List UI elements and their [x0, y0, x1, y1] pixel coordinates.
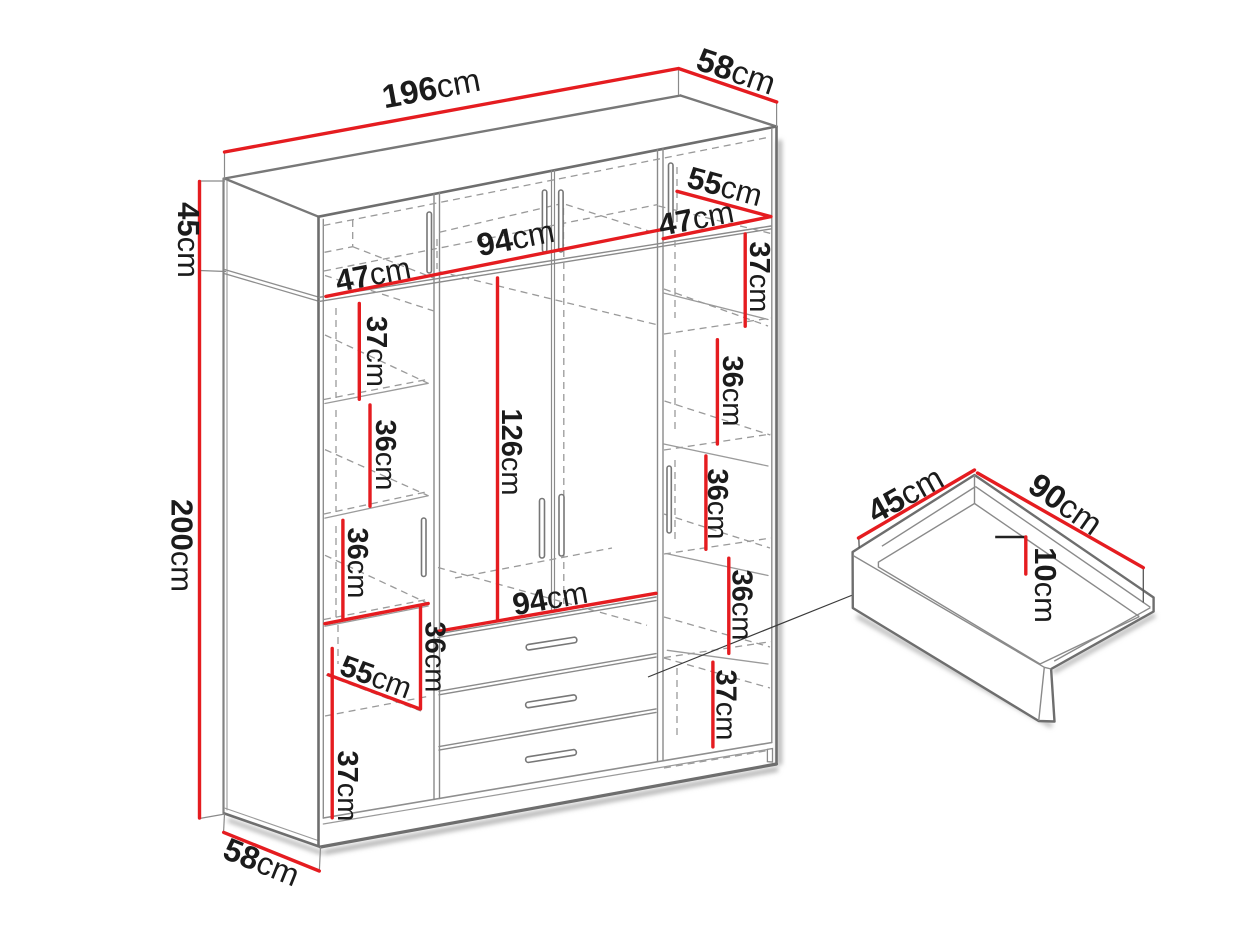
svg-text:37cm: 37cm	[331, 751, 363, 822]
svg-text:37cm: 37cm	[743, 242, 775, 313]
svg-text:10cm: 10cm	[1028, 547, 1063, 623]
svg-text:45cm: 45cm	[171, 202, 206, 278]
svg-text:36cm: 36cm	[419, 622, 451, 693]
svg-text:200cm: 200cm	[164, 499, 199, 592]
svg-text:36cm: 36cm	[716, 356, 748, 427]
svg-text:36cm: 36cm	[701, 469, 733, 540]
svg-text:37cm: 37cm	[360, 316, 392, 387]
svg-text:36cm: 36cm	[726, 570, 758, 641]
svg-text:36cm: 36cm	[341, 528, 373, 599]
svg-text:126cm: 126cm	[495, 408, 527, 495]
svg-text:36cm: 36cm	[369, 420, 401, 491]
svg-text:37cm: 37cm	[710, 670, 742, 741]
